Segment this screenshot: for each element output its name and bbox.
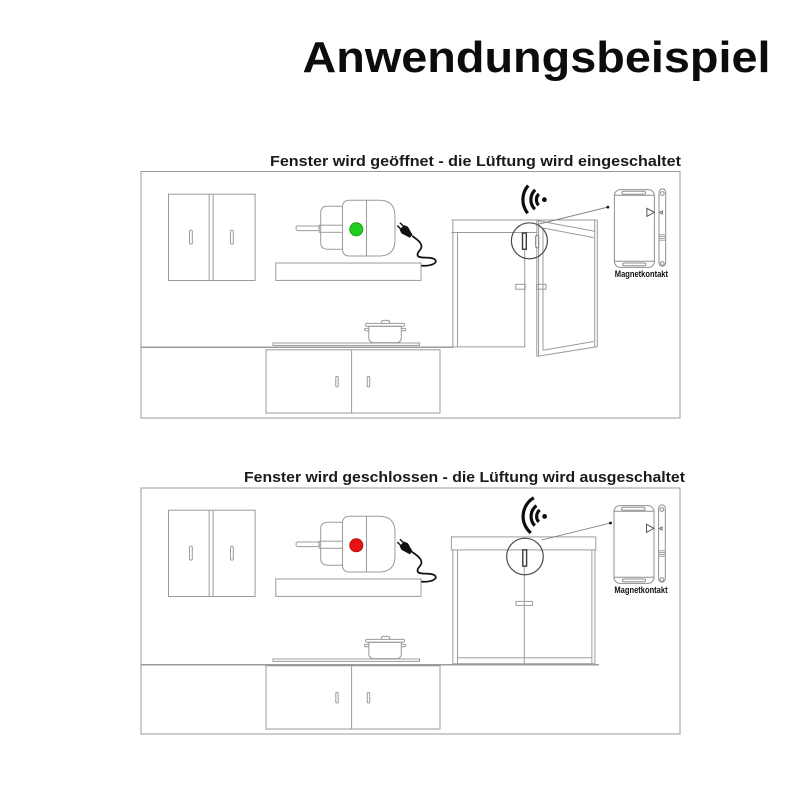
svg-text:Magnetkontakt: Magnetkontakt (614, 585, 667, 595)
svg-text:Anwendungsbeispiel: Anwendungsbeispiel (303, 33, 771, 82)
svg-text:Fenster wird geöffnet - die Lü: Fenster wird geöffnet - die Lüftung wird… (270, 154, 681, 170)
svg-text:Fenster wird geschlossen - die: Fenster wird geschlossen - die Lüftung w… (244, 470, 685, 486)
svg-text:Magnetkontakt: Magnetkontakt (615, 269, 668, 279)
